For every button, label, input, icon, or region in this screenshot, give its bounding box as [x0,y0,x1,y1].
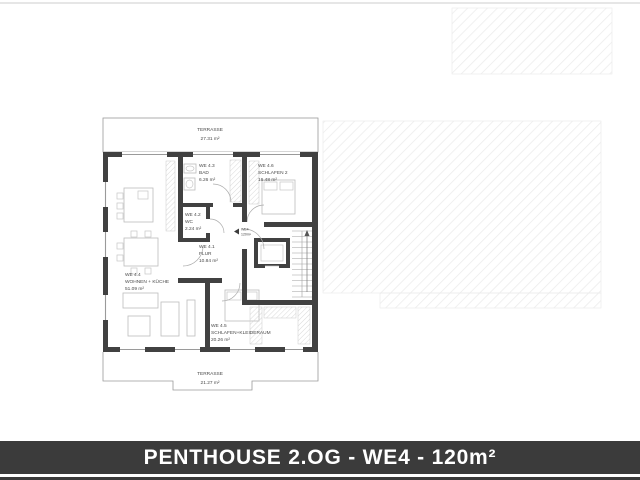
title-bar: PENTHOUSE 2.OG - WE4 - 120m² [0,441,640,474]
tv-sideboard [187,300,195,336]
room-area: 16.48 m² [258,177,277,183]
room-name: FLUR [199,251,212,257]
floor-plan-sheet: TERRASSE 27.31 m² TERRASSE 21.27 m² [0,0,640,480]
floor-plan: TERRASSE 27.31 m² TERRASSE 21.27 m² [0,0,640,480]
room-area: 51.09 m² [125,286,144,292]
terrace-bottom-name: TERRASSE [197,371,223,377]
room-id: WE 4.3 [199,163,215,169]
room-id: WE 4.1 [199,244,215,250]
room-id: WE 4.2 [185,212,201,218]
terrace-bottom-area: 21.27 m² [201,380,220,386]
terrace-bottom: TERRASSE 21.27 m² [103,352,318,390]
room-area: 6.26 m² [199,177,216,183]
room-id: WE 4.5 [211,323,227,329]
bathtub [230,160,241,202]
room-area: 10.84 m² [199,258,218,264]
coffee-table [128,316,150,336]
room-id: WE 4.4 [125,272,141,278]
unit-marker-id: WE4 [241,228,249,232]
bed-schlafen2 [262,180,295,214]
elevator [256,240,288,270]
room-id: WE 4.6 [258,163,274,169]
kitchen-cabinet [166,161,175,231]
room-name: WOHNEN + KÜCHE [125,278,169,285]
room-name: WC [185,219,194,225]
room-area: 2.24 m² [185,226,202,232]
terrace-top-area: 27.31 m² [201,136,220,142]
bath-sink [184,164,196,173]
room-name: SCHLAFEN 2 [258,170,288,176]
unit-marker-area: 120m² [241,233,252,237]
page-title: PENTHOUSE 2.OG - WE4 - 120m² [144,446,497,470]
room-name: BAD [199,170,209,176]
bath-toilet [184,178,195,190]
room-area: 20.26 m² [211,337,230,343]
room-name: SCHLAFEN+KLEIDERAUM [211,330,271,336]
terrace-top: TERRASSE 27.31 m² [103,118,318,152]
adjacent-area-hatch [323,8,612,308]
terrace-top-name: TERRASSE [197,127,223,133]
